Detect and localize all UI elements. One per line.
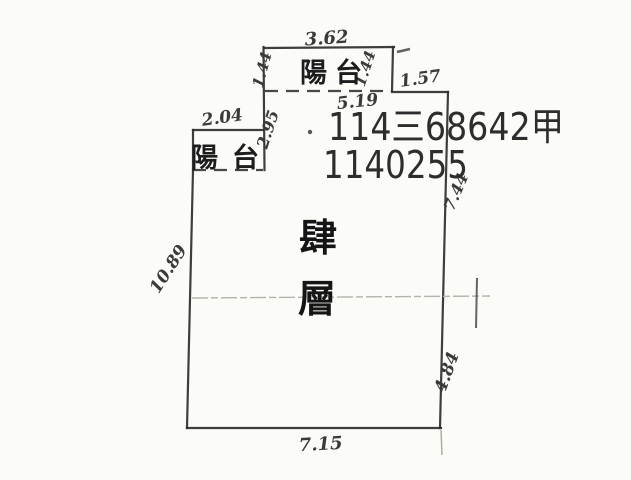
- dim-balcony-top-width: 3.62: [304, 27, 349, 51]
- dim-left-wall: 10.89: [146, 241, 192, 297]
- stray-mark-top-right: [397, 49, 410, 52]
- bottom-right-wall-extension: [441, 430, 442, 455]
- floor-label-char-1: 肆: [299, 215, 337, 260]
- balcony-left-label: 陽台: [191, 142, 273, 174]
- stamp-number-line-2: 1140255: [323, 143, 468, 187]
- ink-speck: [308, 130, 312, 134]
- dim-top-right-segment: 1.57: [398, 66, 442, 92]
- fold-line-right-tick: [476, 278, 477, 328]
- floor-label-char-2: 層: [298, 276, 336, 321]
- dim-bottom-wall: 7.15: [298, 433, 343, 456]
- balcony-top-right-wall: [392, 47, 393, 91]
- floor-plan-drawing: 3.62 1.44 1.44 1.57 5.19 2.04 2.95 10.89…: [0, 0, 631, 480]
- dim-right-wall-lower: 4.84: [431, 349, 464, 395]
- balcony-top-label: 陽台: [300, 57, 370, 89]
- dim-balcony-left-width: 2.04: [199, 105, 244, 131]
- scanned-floor-plan-page: 3.62 1.44 1.44 1.57 5.19 2.04 2.95 10.89…: [0, 0, 631, 480]
- fold-line: [192, 296, 490, 298]
- dim-balcony-top-left-depth: 1.44: [249, 50, 276, 90]
- left-wall: [187, 170, 193, 428]
